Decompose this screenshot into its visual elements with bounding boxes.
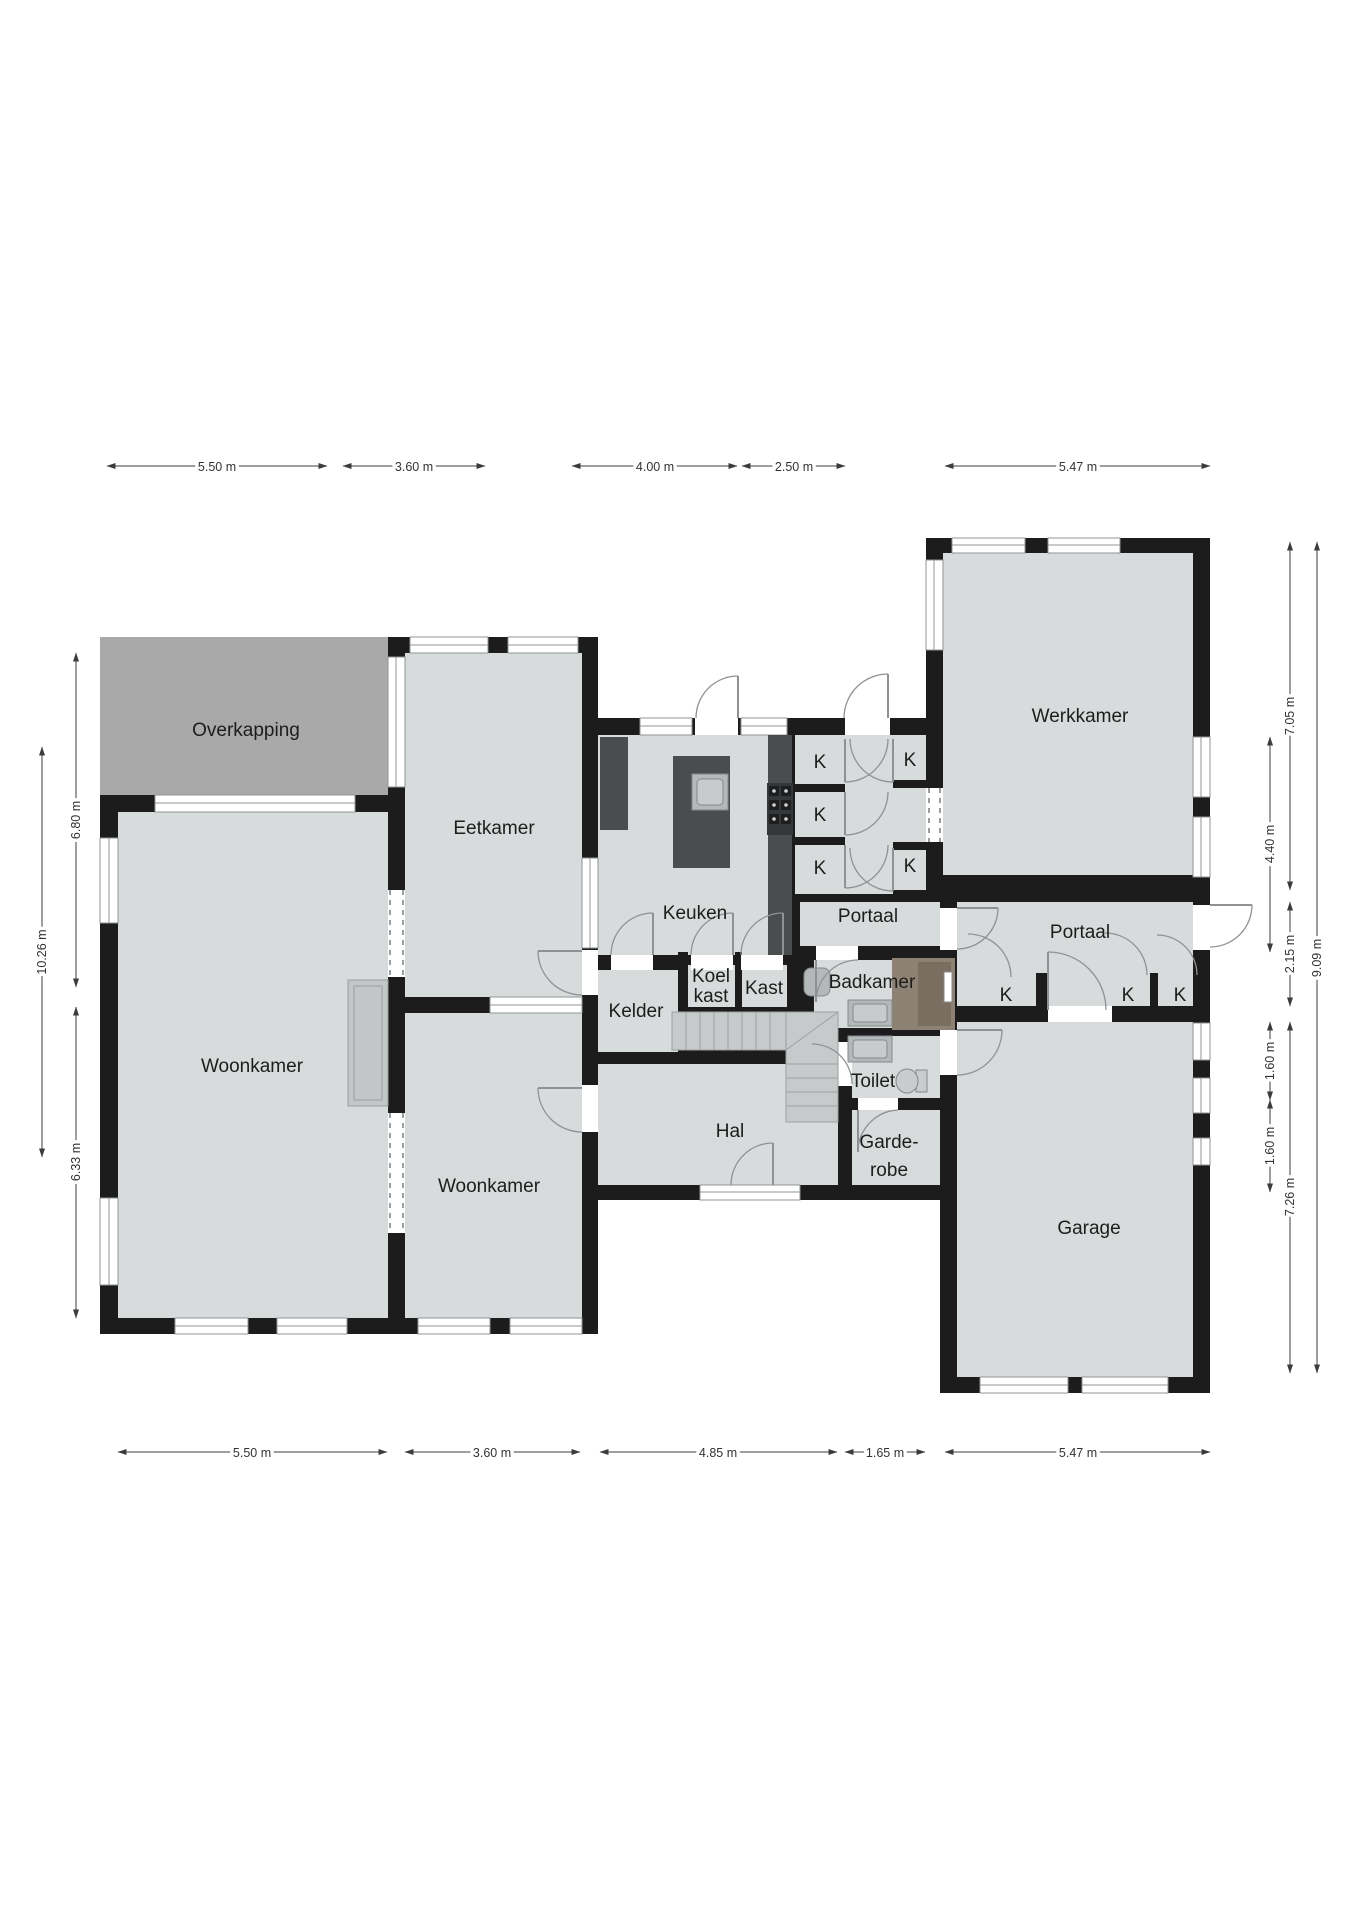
hal-label: Hal (716, 1121, 745, 1142)
eetkamer-label: Eetkamer (453, 818, 535, 839)
dim-bottom-4: 1.65 m (866, 1446, 904, 1460)
dim-right-440: 4.40 m (1263, 825, 1277, 863)
dim-left-2: 6.33 m (69, 1143, 83, 1181)
kitchen-island (673, 756, 730, 868)
toilet-bowl (896, 1069, 927, 1093)
dim-right-909: 9.09 m (1310, 939, 1324, 977)
closet-k-1: K (814, 752, 827, 773)
overkapping-label: Overkapping (192, 720, 300, 741)
woonkamer-small-label: Woonkamer (438, 1176, 541, 1197)
dim-left-outer: 10.26 m (35, 929, 49, 974)
garage-floor (957, 1022, 1193, 1377)
dim-top-2: 3.60 m (395, 460, 433, 474)
closet-k-8: K (1174, 985, 1187, 1006)
dim-left-1: 6.80 m (69, 801, 83, 839)
floor-plan-drawing: Overkapping Eetkamer Keuken Woonkamer Wo… (0, 0, 1358, 1920)
toilet-sink-basin (853, 1040, 887, 1058)
dim-right-160a: 1.60 m (1263, 1042, 1277, 1080)
island-sink-basin (697, 779, 723, 805)
closet-k-3: K (814, 858, 827, 879)
dim-right-215: 2.15 m (1283, 935, 1297, 973)
dim-top-4: 2.50 m (775, 460, 813, 474)
dim-top-3: 4.00 m (636, 460, 674, 474)
dim-bottom-5: 5.47 m (1059, 1446, 1097, 1460)
dim-bottom-2: 3.60 m (473, 1446, 511, 1460)
garderobe-label-line2: robe (870, 1160, 908, 1181)
dim-bottom-3: 4.85 m (699, 1446, 737, 1460)
dim-top-1: 5.50 m (198, 460, 236, 474)
kelder-label: Kelder (609, 1001, 665, 1022)
shower (892, 958, 955, 1030)
woonkamer-small-floor (405, 1013, 582, 1318)
stove (767, 783, 793, 835)
closet-k-5: K (904, 856, 917, 877)
portaal-north-floor (845, 735, 893, 902)
garage-label: Garage (1057, 1218, 1120, 1239)
badkamer-label: Badkamer (829, 972, 916, 993)
kitchen-counter-left (600, 737, 628, 830)
toilet-label: Toilet (851, 1071, 896, 1092)
garderobe-label-line1: Garde- (859, 1132, 918, 1153)
overkapping-area (100, 637, 388, 795)
dim-top-5: 5.47 m (1059, 460, 1097, 474)
portaal-north-label: Portaal (838, 906, 898, 927)
koelkast-label-line1: Koel (692, 966, 730, 987)
dim-right-160b: 1.60 m (1263, 1127, 1277, 1165)
closet-k-2: K (814, 805, 827, 826)
dim-bottom-1: 5.50 m (233, 1446, 271, 1460)
werkkamer-label: Werkkamer (1032, 706, 1129, 727)
woonkamer-big-label: Woonkamer (201, 1056, 304, 1077)
koelkast-label-line2: kast (694, 986, 730, 1007)
closet-k-7: K (1122, 985, 1135, 1006)
keuken-label: Keuken (663, 903, 727, 924)
kast-label: Kast (745, 978, 784, 999)
closet-k-4: K (904, 750, 917, 771)
closet-k-6: K (1000, 985, 1013, 1006)
floor-plan-page: Overkapping Eetkamer Keuken Woonkamer Wo… (0, 0, 1358, 1920)
dim-right-726: 7.26 m (1283, 1178, 1297, 1216)
badkamer-sink-basin (853, 1004, 887, 1022)
dim-right-705: 7.05 m (1283, 697, 1297, 735)
portaal-east-label: Portaal (1050, 922, 1110, 943)
kitchen-counter-right (768, 735, 792, 955)
